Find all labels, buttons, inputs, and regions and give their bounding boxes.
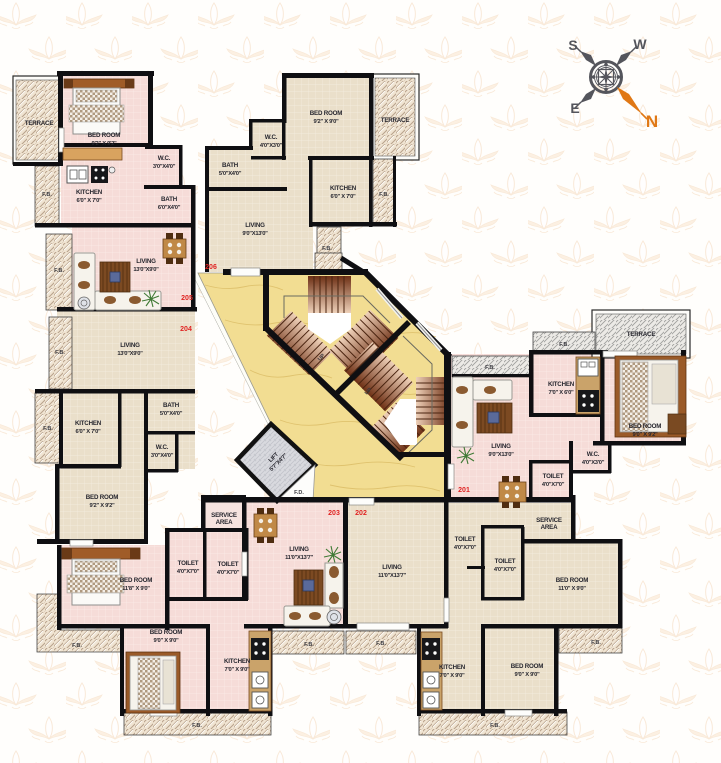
svg-text:F.B.: F.B. bbox=[72, 643, 82, 649]
svg-text:TERRACE: TERRACE bbox=[381, 117, 410, 124]
svg-text:3'0"X4'0": 3'0"X4'0" bbox=[153, 164, 176, 170]
svg-text:7'0" X 9'0": 7'0" X 9'0" bbox=[225, 667, 250, 673]
svg-text:4'0"X3'0": 4'0"X3'0" bbox=[260, 143, 283, 149]
svg-text:4'0"X3'0": 4'0"X3'0" bbox=[582, 460, 605, 466]
svg-text:F.B.: F.B. bbox=[591, 640, 601, 646]
svg-text:BED ROOM: BED ROOM bbox=[556, 577, 588, 584]
svg-text:AREA: AREA bbox=[541, 524, 558, 531]
svg-text:LIVING: LIVING bbox=[120, 342, 140, 349]
svg-text:F.B.: F.B. bbox=[43, 426, 53, 432]
svg-text:F.B.: F.B. bbox=[192, 723, 202, 729]
svg-text:F.D.: F.D. bbox=[294, 490, 304, 496]
svg-text:F.B.: F.B. bbox=[322, 246, 332, 252]
svg-text:9'2" X 9'2": 9'2" X 9'2" bbox=[90, 503, 115, 509]
svg-text:6'0" X 7'0": 6'0" X 7'0" bbox=[77, 198, 102, 204]
svg-text:202: 202 bbox=[355, 510, 367, 517]
svg-text:KITCHEN: KITCHEN bbox=[75, 420, 102, 427]
svg-text:BATH: BATH bbox=[222, 162, 239, 169]
svg-text:F.B.: F.B. bbox=[559, 342, 569, 348]
svg-text:4'0"X7'0": 4'0"X7'0" bbox=[177, 569, 200, 575]
svg-text:N: N bbox=[646, 112, 658, 131]
svg-text:13'0"X9'0": 13'0"X9'0" bbox=[117, 351, 143, 357]
svg-text:TOILET: TOILET bbox=[543, 473, 564, 480]
svg-text:BED ROOM: BED ROOM bbox=[150, 629, 182, 636]
svg-text:11'8" X 9'0": 11'8" X 9'0" bbox=[122, 586, 150, 592]
svg-text:S: S bbox=[568, 37, 577, 53]
svg-text:BED ROOM: BED ROOM bbox=[120, 577, 152, 584]
svg-text:11'0"X13'7": 11'0"X13'7" bbox=[285, 555, 313, 561]
svg-text:4'0"X7'0": 4'0"X7'0" bbox=[217, 570, 240, 576]
svg-text:BED ROOM: BED ROOM bbox=[86, 494, 118, 501]
svg-text:W.C.: W.C. bbox=[265, 134, 278, 141]
svg-text:F.B.: F.B. bbox=[55, 350, 65, 356]
svg-text:9'0"X13'0": 9'0"X13'0" bbox=[488, 452, 514, 458]
svg-text:4'0"X7'0": 4'0"X7'0" bbox=[494, 567, 517, 573]
svg-text:TOILET: TOILET bbox=[218, 561, 239, 568]
svg-text:KITCHEN: KITCHEN bbox=[224, 658, 251, 665]
svg-text:SERVICE: SERVICE bbox=[211, 512, 237, 519]
svg-text:11'0" X 9'0": 11'0" X 9'0" bbox=[558, 586, 586, 592]
svg-text:3'0"X4'0": 3'0"X4'0" bbox=[151, 453, 174, 459]
svg-text:5'0"X4'0": 5'0"X4'0" bbox=[160, 411, 183, 417]
svg-text:11'0"X13'7": 11'0"X13'7" bbox=[378, 573, 406, 579]
svg-text:4'0"X7'0": 4'0"X7'0" bbox=[542, 482, 565, 488]
svg-text:7'0" X 6'0": 7'0" X 6'0" bbox=[549, 390, 574, 396]
svg-text:KITCHEN: KITCHEN bbox=[548, 381, 575, 388]
svg-text:BED ROOM: BED ROOM bbox=[88, 132, 120, 139]
svg-text:203: 203 bbox=[328, 510, 340, 517]
svg-text:KITCHEN: KITCHEN bbox=[439, 664, 466, 671]
svg-text:4'0"X7'0": 4'0"X7'0" bbox=[454, 545, 477, 551]
svg-text:F.B.: F.B. bbox=[490, 723, 500, 729]
svg-text:BED ROOM: BED ROOM bbox=[310, 110, 342, 117]
svg-text:F.B.: F.B. bbox=[485, 365, 495, 371]
svg-text:LIVING: LIVING bbox=[136, 258, 156, 265]
svg-text:F.B.: F.B. bbox=[376, 641, 386, 647]
svg-text:9'0" X 9'2": 9'0" X 9'2" bbox=[633, 432, 658, 438]
svg-text:KITCHEN: KITCHEN bbox=[330, 185, 357, 192]
svg-text:W.C.: W.C. bbox=[587, 451, 600, 458]
svg-text:206: 206 bbox=[205, 264, 217, 271]
svg-text:LIVING: LIVING bbox=[382, 564, 402, 571]
svg-text:TOILET: TOILET bbox=[495, 558, 516, 565]
svg-text:201: 201 bbox=[458, 487, 470, 494]
svg-text:TOILET: TOILET bbox=[178, 560, 199, 567]
svg-text:9'2" X 9'2": 9'2" X 9'2" bbox=[92, 141, 117, 147]
svg-text:BED ROOM: BED ROOM bbox=[511, 663, 543, 670]
svg-text:F.B.: F.B. bbox=[304, 642, 314, 648]
svg-text:E: E bbox=[570, 100, 579, 116]
svg-text:9'2" X 9'0": 9'2" X 9'0" bbox=[314, 119, 339, 125]
svg-text:6'0" X 7'0": 6'0" X 7'0" bbox=[76, 429, 101, 435]
svg-text:F.B.: F.B. bbox=[379, 192, 389, 198]
svg-text:W.C.: W.C. bbox=[158, 155, 171, 162]
svg-text:TOILET: TOILET bbox=[455, 536, 476, 543]
svg-text:9'0"X13'0": 9'0"X13'0" bbox=[242, 231, 268, 237]
svg-text:F.B.: F.B. bbox=[54, 268, 64, 274]
svg-text:6'0" X 7'0": 6'0" X 7'0" bbox=[331, 194, 356, 200]
svg-text:LIVING: LIVING bbox=[245, 222, 265, 229]
svg-text:F.B.: F.B. bbox=[42, 192, 52, 198]
svg-text:W: W bbox=[633, 36, 647, 52]
svg-text:TERRACE: TERRACE bbox=[25, 120, 54, 127]
svg-text:13'0"X9'0": 13'0"X9'0" bbox=[133, 267, 159, 273]
svg-text:AREA: AREA bbox=[216, 519, 233, 526]
svg-text:LIVING: LIVING bbox=[491, 443, 511, 450]
svg-text:KITCHEN: KITCHEN bbox=[76, 189, 103, 196]
svg-text:BED ROOM: BED ROOM bbox=[629, 423, 661, 430]
svg-text:204: 204 bbox=[180, 326, 192, 333]
svg-text:BATH: BATH bbox=[161, 196, 178, 203]
svg-text:7'0" X 9'0": 7'0" X 9'0" bbox=[440, 673, 465, 679]
svg-text:9'0" X 9'0": 9'0" X 9'0" bbox=[515, 672, 540, 678]
svg-text:LIVING: LIVING bbox=[289, 546, 309, 553]
svg-text:205: 205 bbox=[181, 295, 193, 302]
svg-text:6'0"X4'0": 6'0"X4'0" bbox=[158, 205, 181, 211]
svg-text:TERRACE: TERRACE bbox=[627, 331, 656, 338]
svg-text:9'0" X 9'0": 9'0" X 9'0" bbox=[154, 638, 179, 644]
svg-text:BATH: BATH bbox=[163, 402, 180, 409]
svg-text:W.C.: W.C. bbox=[156, 444, 169, 451]
svg-text:SERVICE: SERVICE bbox=[536, 517, 562, 524]
svg-text:5'0"X4'0": 5'0"X4'0" bbox=[219, 171, 242, 177]
